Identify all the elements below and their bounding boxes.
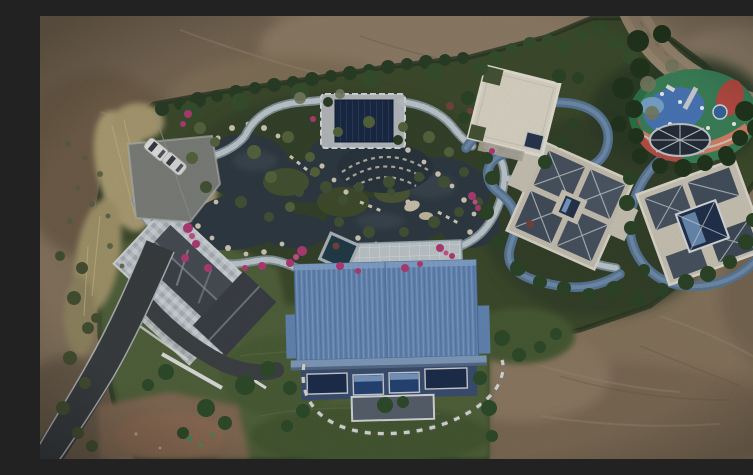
vignette xyxy=(40,16,753,459)
aerial-photo: Aerial drone photograph of a landscaped … xyxy=(40,16,753,459)
